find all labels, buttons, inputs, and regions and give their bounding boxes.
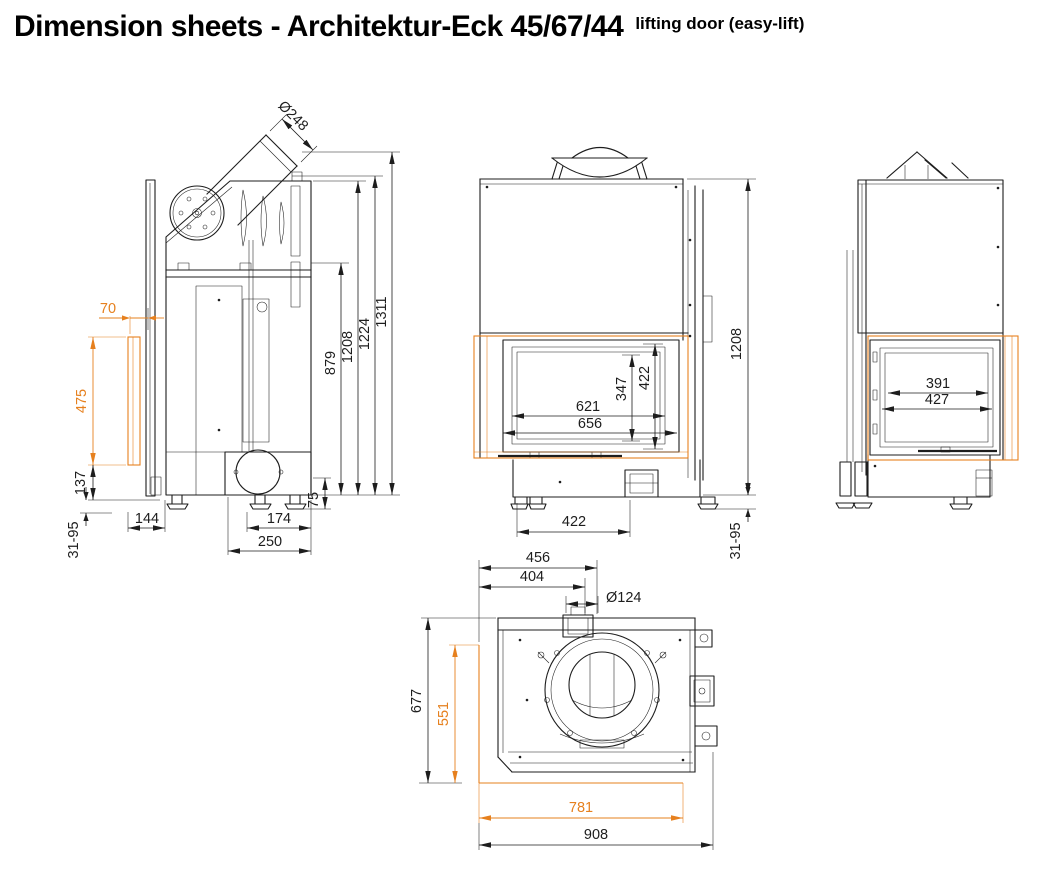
dim-top-depth-total: 677 bbox=[409, 618, 496, 783]
dim-label-depth-total: 677 bbox=[409, 689, 425, 713]
dim-label-glass-height: 475 bbox=[74, 389, 90, 413]
dim-label-front-offset: 70 bbox=[100, 301, 116, 317]
dim-label-plinth-height: 137 bbox=[73, 471, 89, 495]
dim-side-front-offset: 70 bbox=[99, 301, 164, 330]
side-view: Ø248 70 475 137 31-9 bbox=[66, 98, 400, 559]
dim-top-collar-offset-outer: 456 bbox=[479, 550, 597, 642]
dim-right-glass-width: 427 bbox=[882, 392, 992, 409]
dim-top-glass-depth: 551 bbox=[436, 645, 455, 783]
dim-top-glass-width: 781 bbox=[479, 800, 683, 818]
side-glass-highlight bbox=[128, 316, 140, 465]
page-title-row: Dimension sheets - Architektur-Eck 45/67… bbox=[14, 10, 1040, 44]
dim-label-top-glass-width: 781 bbox=[569, 800, 593, 816]
dim-top-collar-diameter: Ø124 bbox=[566, 590, 641, 613]
side-view-structure bbox=[128, 135, 311, 509]
page-header: Dimension sheets - Architektur-Eck 45/67… bbox=[0, 0, 1040, 70]
dim-label-glass-width: 656 bbox=[578, 416, 602, 432]
dim-label-duct-depth: 250 bbox=[258, 534, 282, 550]
dim-top-width-total: 908 bbox=[479, 752, 713, 850]
dim-label-width-total: 908 bbox=[584, 827, 608, 843]
dim-front-glass-width-inner: 621 bbox=[512, 399, 665, 416]
dim-label-flue-diameter: Ø248 bbox=[275, 98, 311, 134]
dim-label-height-shelf: 879 bbox=[323, 351, 339, 375]
dim-label-glass-depth: 551 bbox=[436, 702, 452, 726]
dim-label-glass-height-inner: 347 bbox=[614, 377, 630, 401]
front-view-structure bbox=[474, 148, 718, 510]
dim-front-foot-adjust: 31-95 bbox=[705, 482, 756, 560]
top-view-structure bbox=[449, 607, 717, 823]
page-title: Dimension sheets - Architektur-Eck 45/67… bbox=[14, 10, 623, 44]
dim-side-foot-adjust: 31-95 bbox=[66, 487, 112, 559]
dim-label-side-foot-adjust: 31-95 bbox=[66, 521, 82, 558]
right-view-structure bbox=[836, 152, 1018, 509]
dim-side-height-stack: 879 1208 1224 1311 bbox=[292, 152, 400, 495]
dim-label-height-total: 1311 bbox=[374, 296, 390, 327]
dim-side-glass-height: 475 bbox=[74, 337, 126, 465]
dim-label-duct-height: 75 bbox=[306, 492, 322, 508]
dim-label-front-body-height: 1208 bbox=[729, 328, 745, 360]
dim-label-front-depth: 144 bbox=[135, 511, 159, 527]
dim-label-base-width: 422 bbox=[562, 514, 586, 530]
dim-label-duct-inset: 174 bbox=[267, 511, 291, 527]
top-view: 456 404 Ø124 677 551 781 bbox=[409, 550, 717, 850]
dim-right-glass-width-inner: 391 bbox=[888, 376, 988, 393]
dim-label-height-frame: 1224 bbox=[357, 318, 373, 350]
front-glass-highlight bbox=[474, 336, 688, 458]
dim-label-front-foot-adjust: 31-95 bbox=[728, 522, 744, 559]
dim-side-flue-diameter: Ø248 bbox=[270, 98, 317, 162]
right-view: 391 427 bbox=[836, 152, 1018, 509]
page: { "title": { "main": "Dimension sheets -… bbox=[0, 0, 1040, 869]
dim-label-glass-height: 422 bbox=[637, 366, 653, 390]
dim-label-side-height-body: 1208 bbox=[340, 331, 356, 363]
dim-label-right-glass-width-inner: 391 bbox=[926, 376, 950, 392]
dim-front-base-width: 422 bbox=[517, 500, 630, 537]
dim-label-right-glass-width: 427 bbox=[925, 392, 949, 408]
dim-label-collar-offset-inner: 404 bbox=[520, 569, 544, 585]
dim-label-collar-diameter: Ø124 bbox=[606, 590, 641, 606]
dim-side-front-depth: 144 bbox=[128, 500, 165, 532]
dim-front-glass-width: 656 bbox=[503, 416, 677, 433]
dim-front-body-height: 1208 bbox=[687, 179, 756, 495]
front-view: 347 422 621 656 422 1208 bbox=[474, 148, 756, 560]
page-title-note: lifting door (easy-lift) bbox=[635, 10, 804, 34]
dim-top-collar-offset-inner: 404 bbox=[479, 569, 585, 613]
dim-label-glass-width-inner: 621 bbox=[576, 399, 600, 415]
dim-side-duct-height: 75 bbox=[303, 478, 331, 509]
dimension-drawing: Ø248 70 475 137 31-9 bbox=[0, 70, 1040, 865]
dim-label-collar-offset-outer: 456 bbox=[526, 550, 550, 566]
